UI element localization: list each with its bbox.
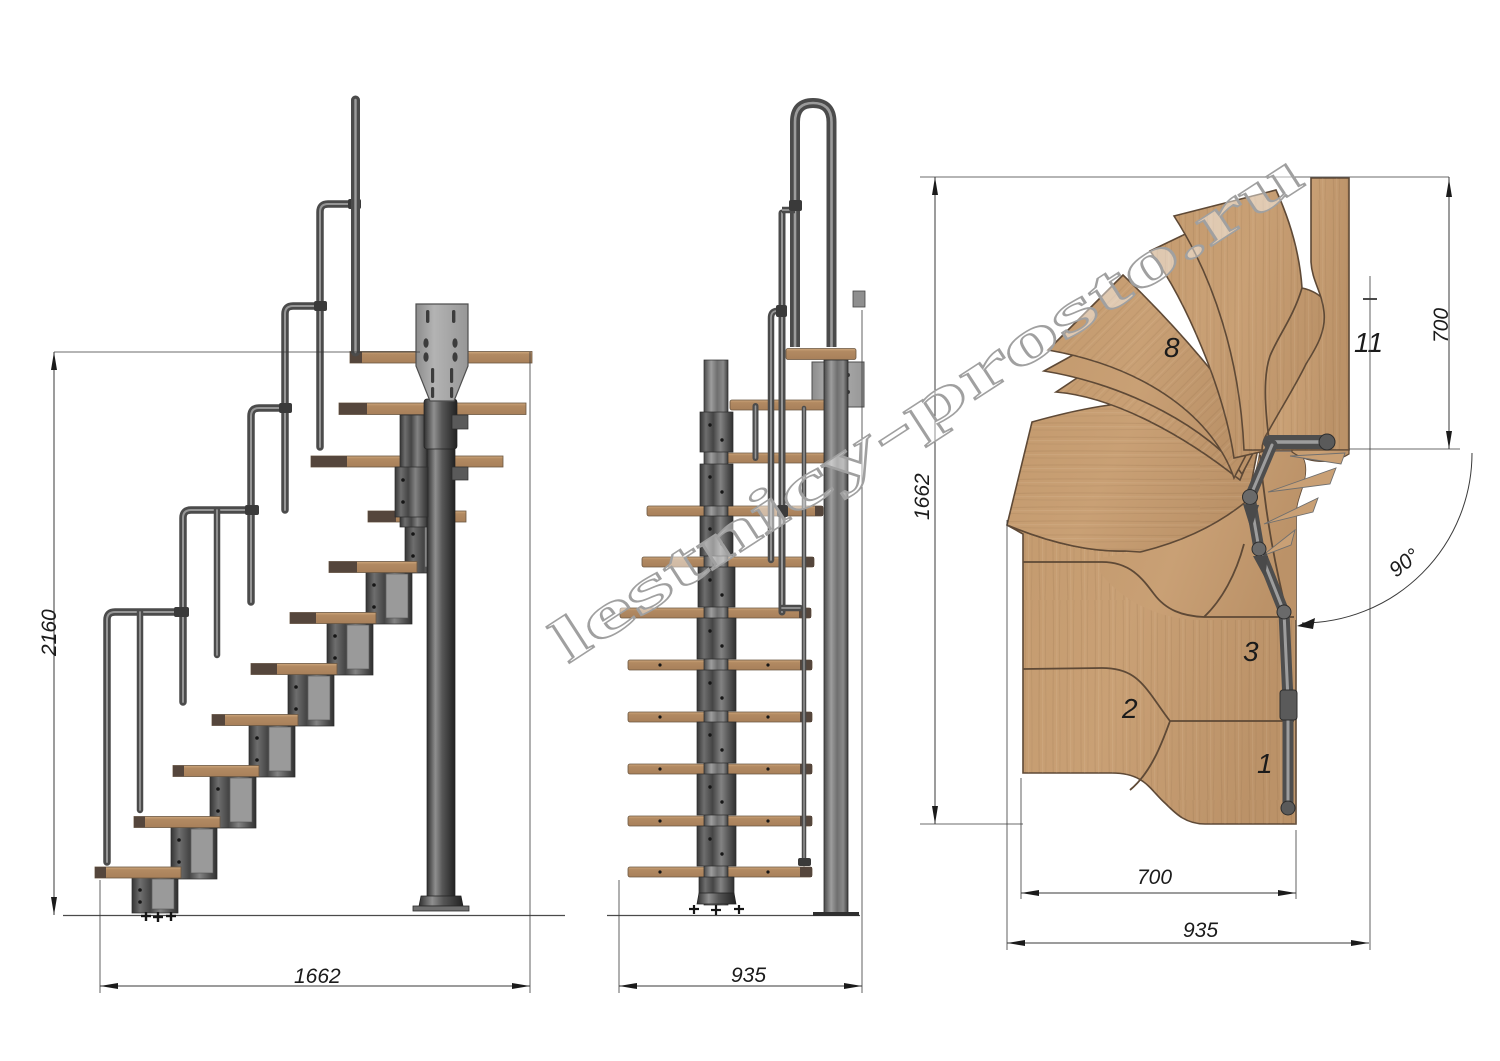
svg-text:1662: 1662 xyxy=(294,965,341,988)
svg-text:1: 1 xyxy=(1257,748,1273,779)
svg-text:700: 700 xyxy=(1430,308,1453,343)
svg-text:90°: 90° xyxy=(1385,544,1424,582)
svg-text:3: 3 xyxy=(1243,636,1259,667)
svg-text:2160: 2160 xyxy=(38,609,61,657)
svg-text:700: 700 xyxy=(1137,866,1172,889)
svg-text:1662: 1662 xyxy=(911,473,934,520)
svg-text:935: 935 xyxy=(1183,919,1218,942)
svg-text:11: 11 xyxy=(1354,327,1383,358)
svg-text:2: 2 xyxy=(1121,693,1138,724)
svg-text:8: 8 xyxy=(1164,332,1180,363)
svg-text:935: 935 xyxy=(731,964,766,987)
